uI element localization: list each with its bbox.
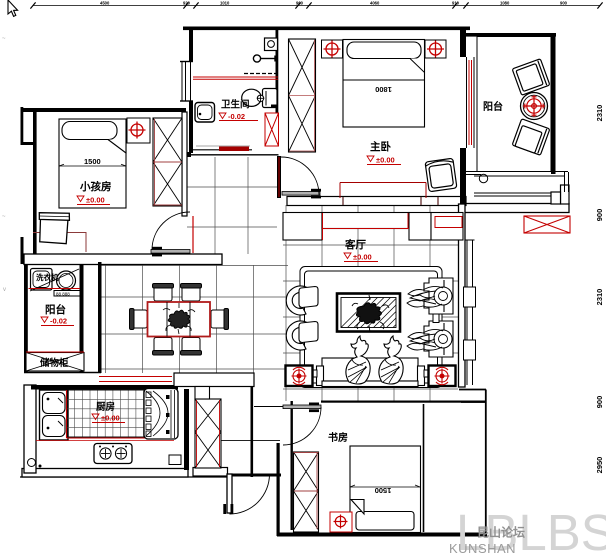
- svg-text:-0.02: -0.02: [228, 112, 245, 121]
- svg-text:920: 920: [183, 1, 191, 6]
- svg-text:±0.00: ±0.00: [376, 156, 395, 165]
- svg-text:书房: 书房: [328, 431, 348, 444]
- svg-text:88 888: 88 888: [56, 292, 70, 297]
- svg-text:阳台: 阳台: [45, 303, 66, 316]
- svg-text:900: 900: [595, 209, 604, 222]
- svg-text:厨房: 厨房: [96, 401, 115, 413]
- svg-text:~: ~: [2, 214, 6, 220]
- svg-text:2310: 2310: [595, 289, 604, 306]
- svg-text:阳台: 阳台: [483, 100, 503, 113]
- svg-text:960: 960: [296, 1, 304, 6]
- svg-text:1500: 1500: [375, 486, 392, 495]
- svg-text:KUNSHAN: KUNSHAN: [449, 541, 516, 556]
- svg-text:2310: 2310: [595, 105, 604, 122]
- svg-text:4060: 4060: [370, 1, 380, 6]
- svg-text:小孩房: 小孩房: [79, 180, 112, 193]
- svg-text:1500: 1500: [84, 157, 101, 166]
- svg-text:储物柜: 储物柜: [40, 357, 69, 369]
- svg-text:±0.00: ±0.00: [101, 414, 120, 423]
- svg-text:900: 900: [560, 1, 568, 6]
- svg-text:±0.00: ±0.00: [86, 196, 105, 205]
- svg-text:~: ~: [2, 36, 6, 42]
- svg-text:洗衣机: 洗衣机: [36, 272, 59, 282]
- svg-text:1080: 1080: [500, 1, 510, 6]
- svg-text:卫生间: 卫生间: [221, 99, 250, 111]
- svg-text:v: v: [3, 287, 6, 293]
- svg-text:昆山论坛: 昆山论坛: [477, 525, 525, 540]
- svg-text:4500: 4500: [100, 1, 110, 6]
- svg-text:1800: 1800: [375, 85, 392, 94]
- svg-text:主卧: 主卧: [370, 140, 391, 153]
- svg-text:-0.02: -0.02: [50, 317, 67, 326]
- svg-text:900: 900: [595, 396, 604, 409]
- svg-text:1010: 1010: [220, 1, 230, 6]
- svg-text:910: 910: [452, 1, 460, 6]
- svg-text:±0.00: ±0.00: [353, 253, 372, 262]
- svg-text:客厅: 客厅: [344, 238, 366, 251]
- svg-text:2950: 2950: [595, 457, 604, 474]
